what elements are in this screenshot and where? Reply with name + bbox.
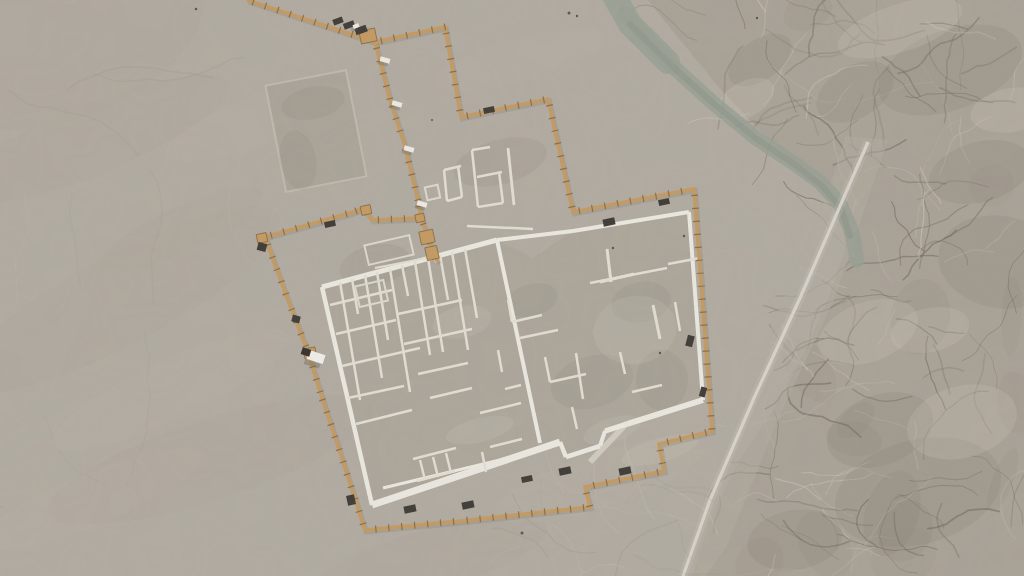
aerial-photo-canvas: [0, 0, 1024, 576]
photo-grain-overlay: [0, 0, 1024, 576]
aerial-photo-desert-ruins: [0, 0, 1024, 576]
